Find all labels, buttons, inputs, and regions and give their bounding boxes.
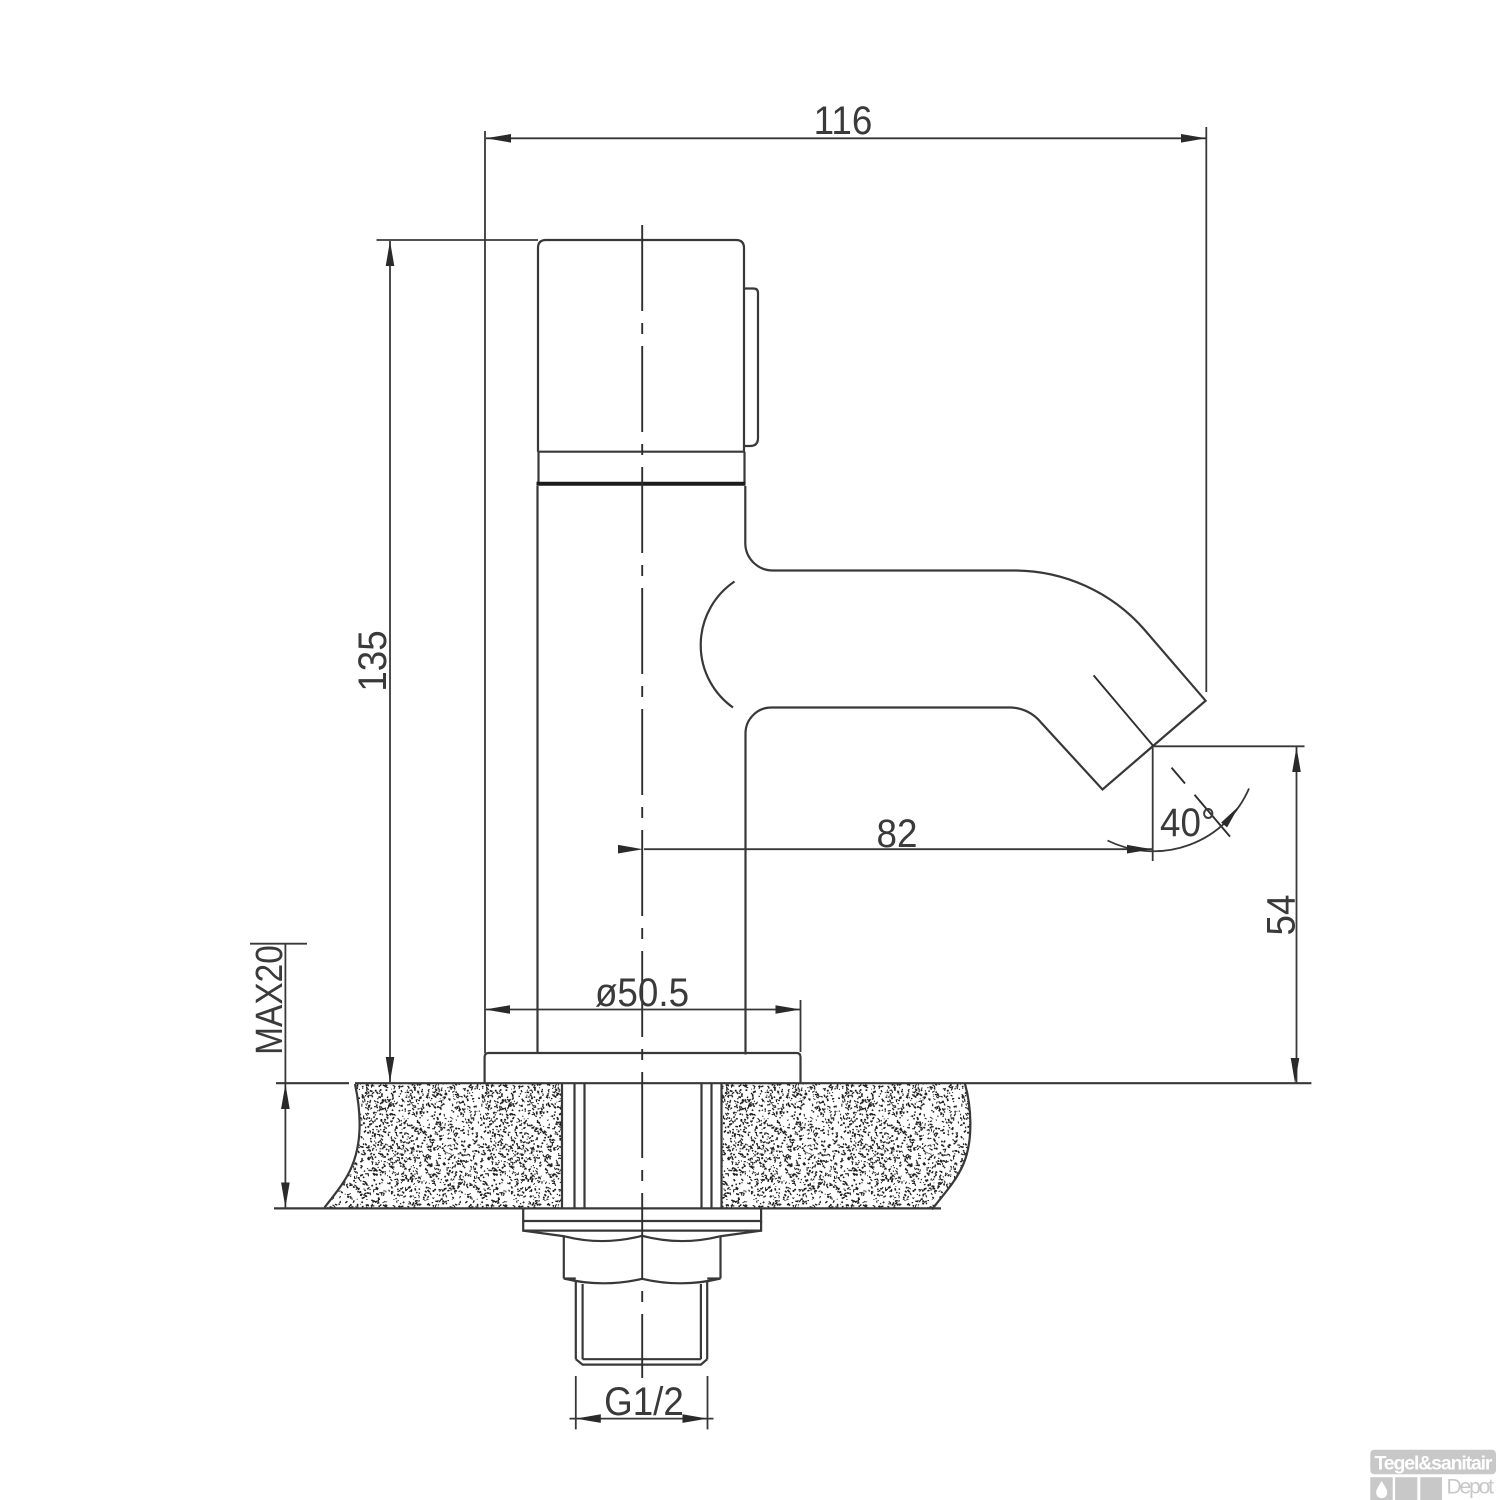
svg-text:116: 116 <box>814 99 873 144</box>
svg-text:G1/2: G1/2 <box>604 1380 684 1425</box>
svg-text:40°: 40° <box>1160 801 1216 846</box>
svg-text:135: 135 <box>351 630 396 691</box>
svg-text:82: 82 <box>877 812 918 857</box>
svg-text:Depot: Depot <box>1447 1476 1495 1499</box>
svg-text:ø50.5: ø50.5 <box>595 971 689 1016</box>
svg-text:54: 54 <box>1259 895 1304 936</box>
svg-text:Tegel&sanitair: Tegel&sanitair <box>1375 1452 1493 1474</box>
svg-text:MAX20: MAX20 <box>248 945 290 1055</box>
